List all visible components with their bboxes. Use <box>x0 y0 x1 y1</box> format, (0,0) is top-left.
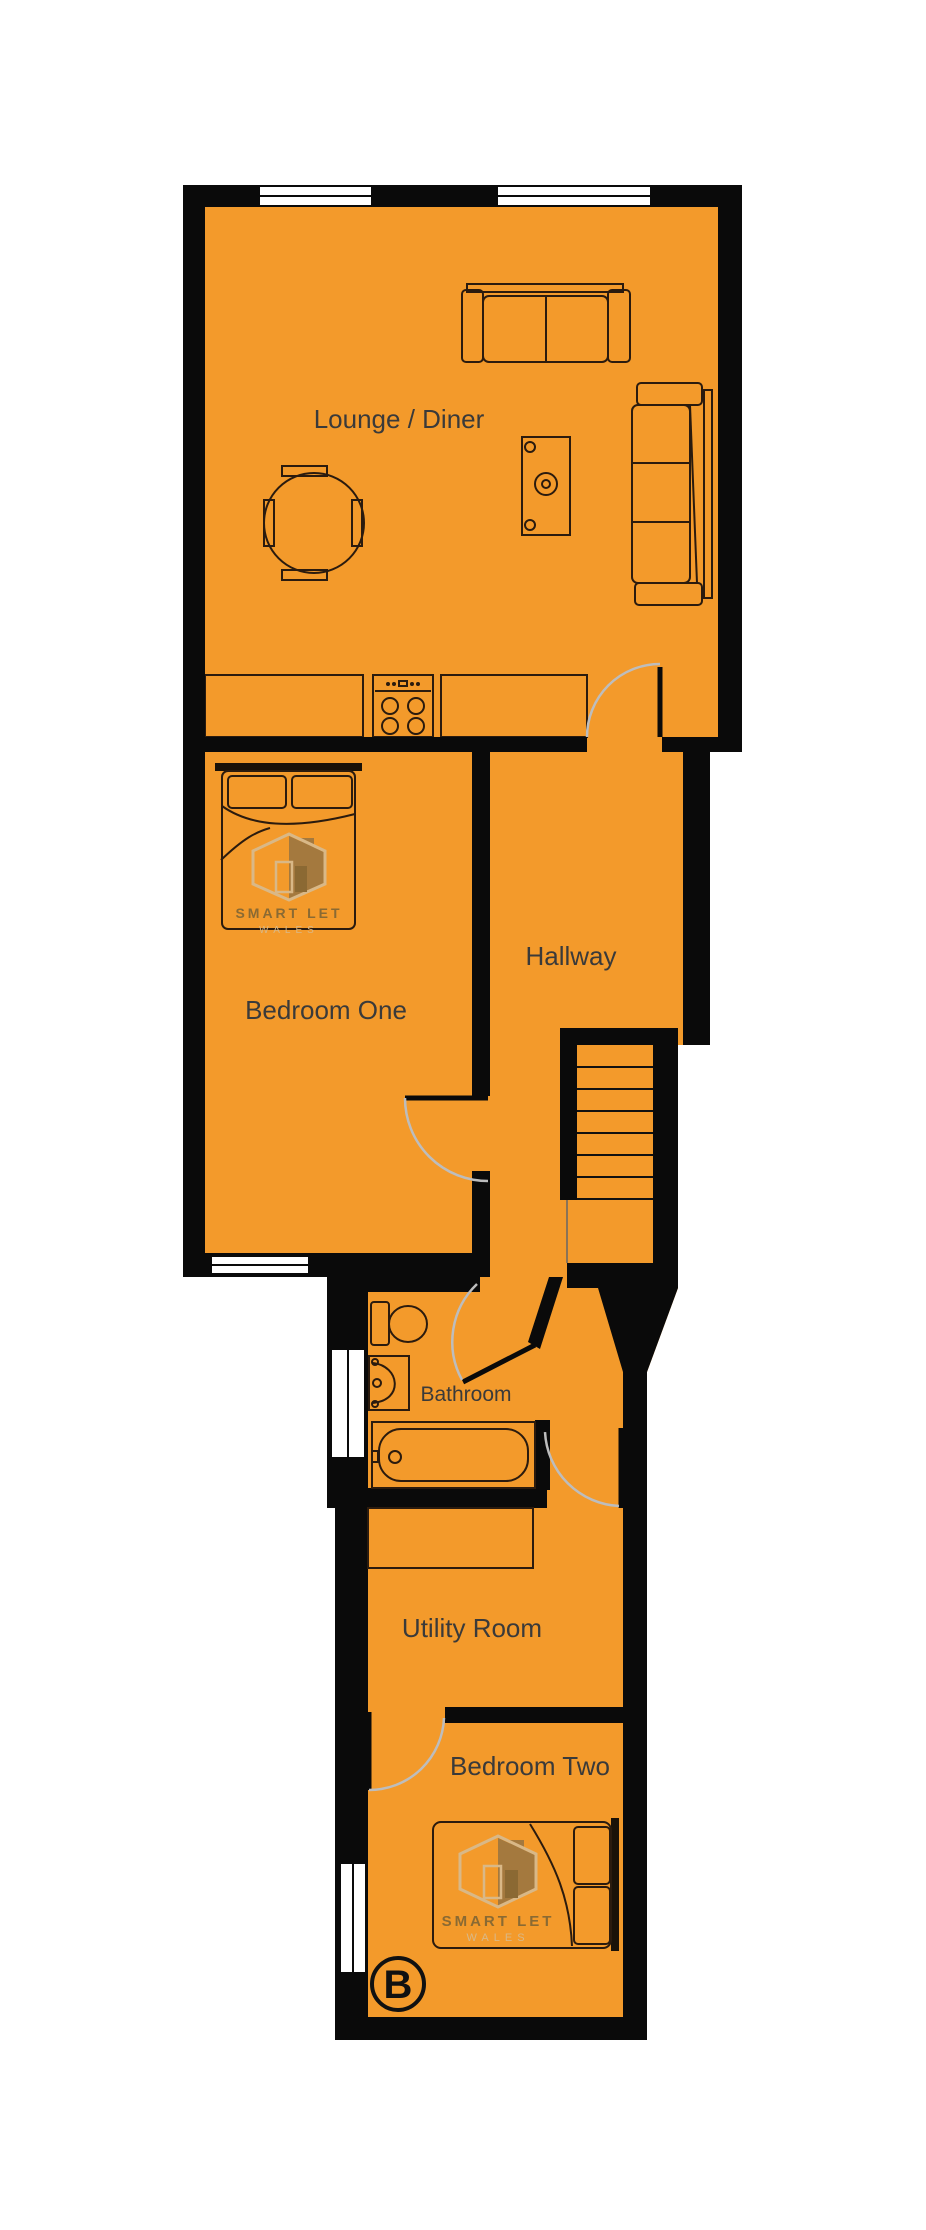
logo-title-text: SMART LET <box>442 1913 555 1930</box>
wall-stairs-left <box>560 1045 577 1200</box>
wall-bathroom-top <box>327 1277 480 1292</box>
wall-stairs-bottom <box>567 1263 678 1288</box>
wall-kitchen-left <box>183 737 587 752</box>
label-bedroom-two: Bedroom Two <box>450 1751 610 1781</box>
label-utility-room: Utility Room <box>402 1613 542 1643</box>
window-bedroom1 <box>212 1257 308 1273</box>
wall-bedroom1-hall-lower <box>472 1171 490 1253</box>
window-lounge-right <box>498 187 650 205</box>
window-bedroom2 <box>341 1864 365 1972</box>
label-hallway: Hallway <box>525 941 616 971</box>
floor-plan: SMART LET WALES SMART LET WALES Lounge /… <box>0 0 926 2230</box>
wall-bathroom-right <box>535 1420 550 1490</box>
wall-right-lounge <box>718 207 742 752</box>
wall-bedroom1-hall-upper <box>472 752 490 1096</box>
label-bedroom-one: Bedroom One <box>245 995 407 1025</box>
window-bathroom <box>332 1350 364 1457</box>
logo-title-text: SMART LET <box>235 905 342 921</box>
wall-hall-outer <box>683 737 710 1045</box>
wall-stairs-right <box>653 1045 678 1288</box>
label-bathroom: Bathroom <box>420 1383 511 1406</box>
wall-right-lower <box>623 1370 647 2040</box>
floorplan-page: SMART LET WALES SMART LET WALES Lounge /… <box>0 0 926 2230</box>
label-lounge-diner: Lounge / Diner <box>314 404 485 434</box>
window-lounge-left <box>260 187 371 205</box>
wall-stairs-top <box>560 1028 678 1045</box>
floor-marker-letter: B <box>384 1963 413 2007</box>
logo-sub-text: WALES <box>259 925 319 936</box>
wall-bedroom2-top <box>445 1707 647 1723</box>
wall-bottom <box>335 2017 647 2040</box>
logo-sub-text: WALES <box>466 1932 529 1944</box>
